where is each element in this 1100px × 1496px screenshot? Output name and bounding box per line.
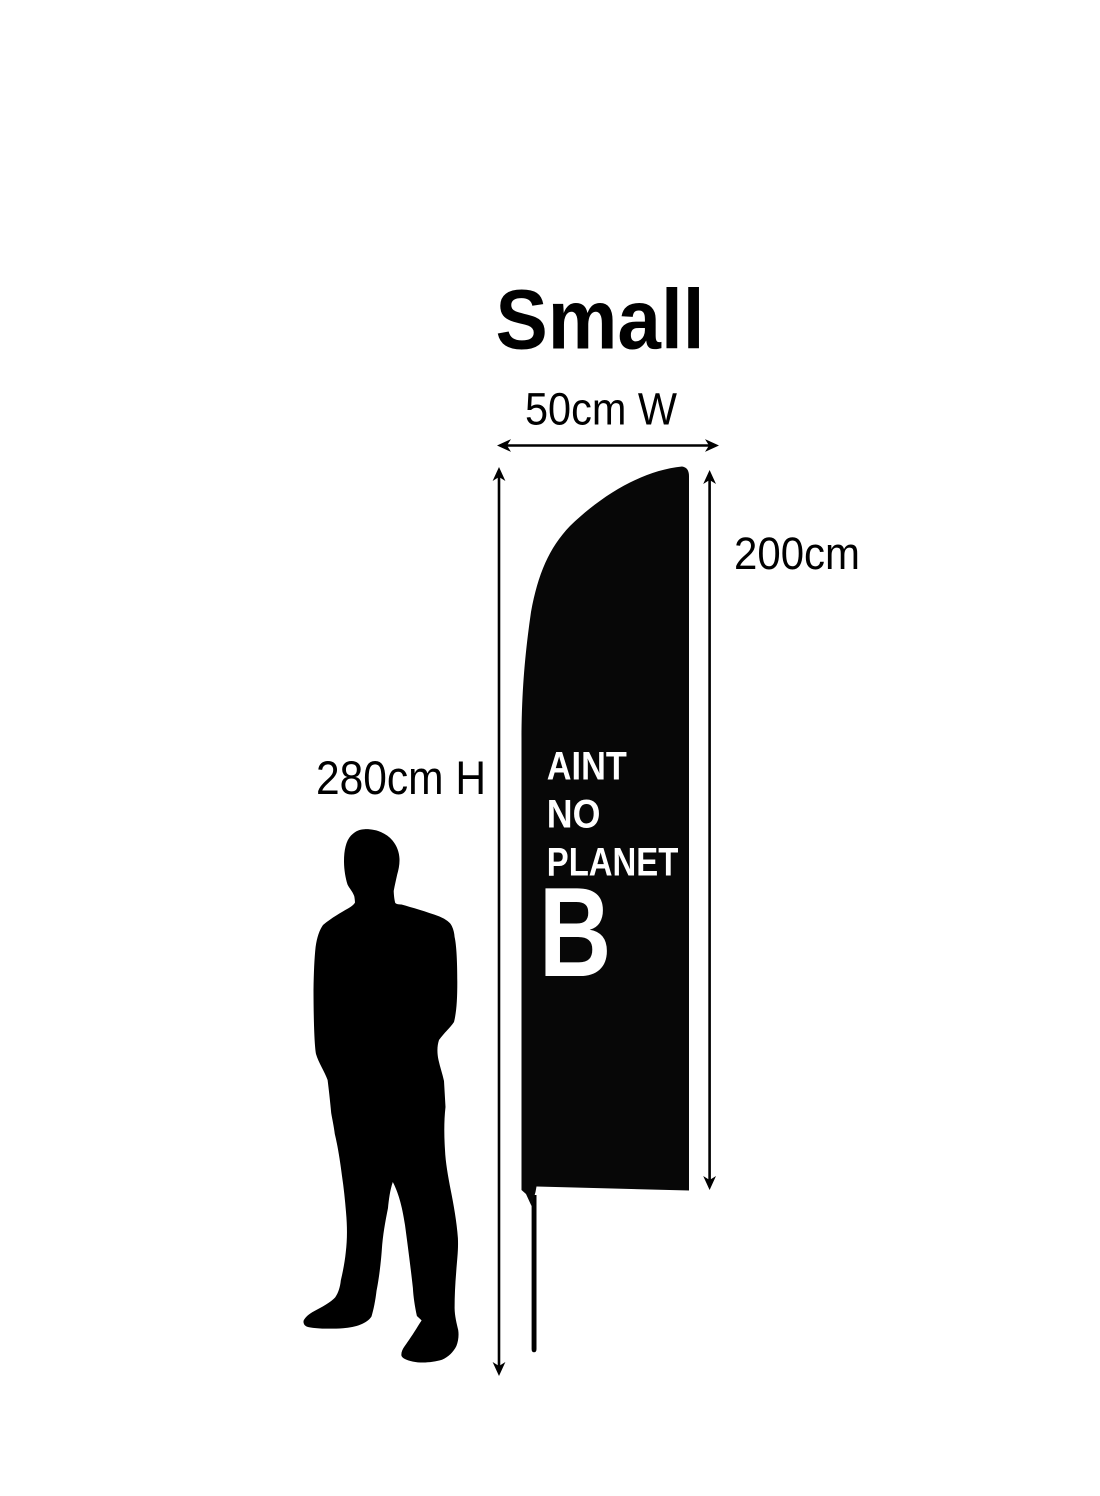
svg-text:280cm H: 280cm H — [316, 752, 486, 805]
svg-text:B: B — [539, 861, 612, 1003]
svg-text:AINT: AINT — [547, 744, 627, 789]
svg-text:50cm W: 50cm W — [525, 384, 677, 435]
svg-text:Small: Small — [496, 273, 705, 367]
svg-text:200cm: 200cm — [734, 528, 860, 579]
svg-text:NO: NO — [547, 792, 601, 837]
